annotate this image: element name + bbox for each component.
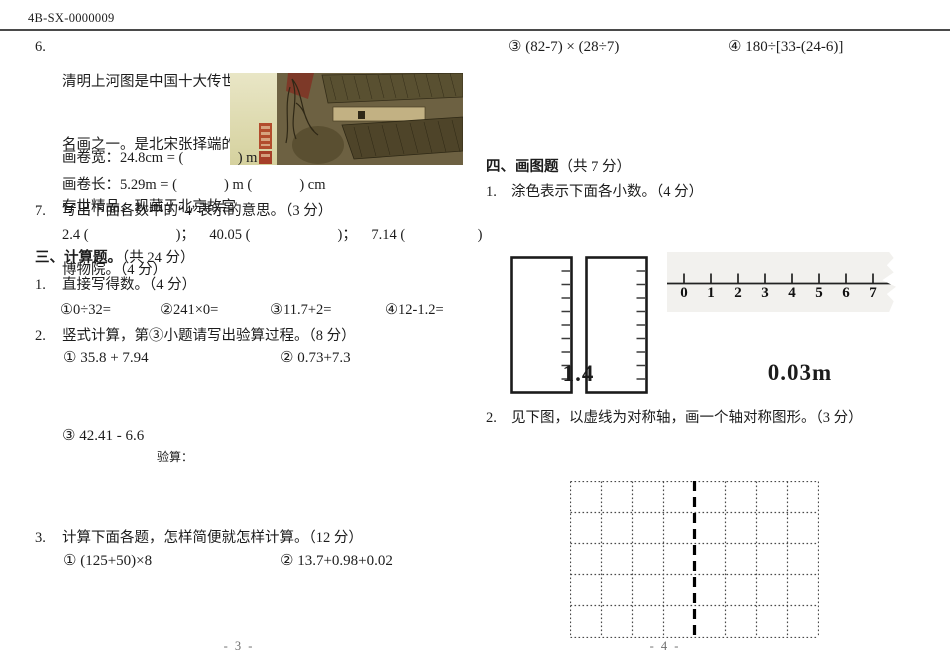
section3-title-rest: （共 24 分） — [122, 250, 195, 266]
section3-title-bold: 三、计算题。 — [35, 250, 122, 266]
section4-title: 四、画图题（共 7 分） — [486, 159, 631, 176]
number-line-strip: 0 1 2 3 4 5 6 7 — [667, 252, 896, 312]
page4-footer: - 4 - — [625, 639, 705, 654]
section3-title: 三、计算题。（共 24 分） — [35, 250, 195, 267]
calc1-number: 1. — [35, 277, 46, 294]
draw2-number: 2. — [486, 410, 497, 427]
calc3-problem-2: ② 13.7+0.98+0.02 — [280, 552, 393, 570]
calc2-problem-2: ② 0.73+7.3 — [280, 349, 351, 367]
section4-title-rest: （共 7 分） — [559, 159, 632, 175]
number-line-tick-1: 1 — [701, 285, 721, 302]
q7-answer-blanks: 2.4 ( )； 40.05 ( )； 7.14 ( ) — [62, 227, 482, 244]
q6-number: 6. — [35, 39, 46, 56]
number-line-tick-6: 6 — [836, 285, 856, 302]
calc1-problem-2: ②241×0= — [160, 302, 218, 319]
calc2-number: 2. — [35, 328, 46, 345]
exam-sheet: 4B-SX-0000009 6. 清明上河图是中国十大传世 名画之一。是北宋张择… — [0, 0, 950, 672]
header-rule — [0, 29, 950, 31]
q7-number: 7. — [35, 203, 46, 220]
number-line-tick-2: 2 — [728, 285, 748, 302]
number-line-tick-5: 5 — [809, 285, 829, 302]
section4-title-bold: 四、画图题 — [486, 159, 559, 175]
qingming-painting-art — [230, 73, 463, 165]
calc3-text: 计算下面各题，怎样简便就怎样计算。（12 分） — [62, 530, 363, 547]
calc3-problem-3: ③ (82-7) × (28÷7) — [508, 38, 619, 56]
doc-code: 4B-SX-0000009 — [28, 11, 115, 26]
calc2-problem-3: ③ 42.41 - 6.6 — [62, 427, 144, 445]
number-line-tick-0: 0 — [674, 285, 694, 302]
number-line-tick-7: 7 — [863, 285, 883, 302]
calc3-problem-1: ① (125+50)×8 — [63, 552, 152, 570]
number-line-axis — [667, 252, 896, 312]
q7-text: 写出下面各数中的“4”表示的意思。（3 分） — [62, 203, 332, 220]
calc1-problem-4: ④12-1.2= — [385, 302, 444, 319]
draw2-text: 见下图，以虚线为对称轴，画一个轴对称图形。（3 分） — [511, 410, 863, 427]
q6-width-blank: 画卷宽：24.8cm = ( ) m — [62, 150, 257, 167]
q6-line: 清明上河图是中国十大传世 — [62, 68, 236, 96]
decimal-label-1-4: 1.4 — [536, 360, 621, 388]
q6-length-blank: 画卷长：5.29m = ( ) m ( ) cm — [62, 177, 326, 194]
decimal-rectangle-1 — [510, 221, 573, 429]
calc1-text: 直接写得数。（4 分） — [62, 277, 196, 294]
number-line-tick-3: 3 — [755, 285, 775, 302]
calc3-number: 3. — [35, 530, 46, 547]
calc1-problem-1: ①0÷32= — [60, 302, 111, 319]
calc3-problem-4: ④ 180÷[33-(24-6)] — [728, 38, 843, 56]
calc2-text: 竖式计算，第③小题请写出验算过程。（8 分） — [62, 328, 356, 345]
draw1-text: 涂色表示下面各小数。（4 分） — [511, 184, 703, 201]
qingming-painting-image — [230, 38, 463, 200]
decimal-label-0-03m: 0.03m — [745, 359, 855, 387]
draw1-number: 1. — [486, 184, 497, 201]
calc1-problem-3: ③11.7+2= — [270, 302, 331, 319]
calc2-problem-1: ① 35.8 + 7.94 — [63, 349, 149, 367]
decimal-rectangle-2 — [585, 221, 648, 429]
page3-footer: - 3 - — [199, 639, 279, 654]
number-line-tick-4: 4 — [782, 285, 802, 302]
calc2-check-label: 验算： — [157, 450, 193, 464]
